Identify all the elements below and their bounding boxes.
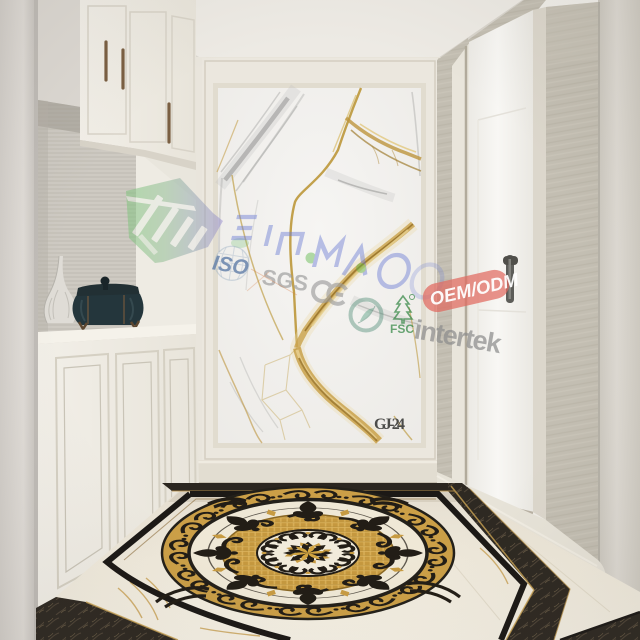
svg-text:FSC: FSC (390, 322, 414, 336)
